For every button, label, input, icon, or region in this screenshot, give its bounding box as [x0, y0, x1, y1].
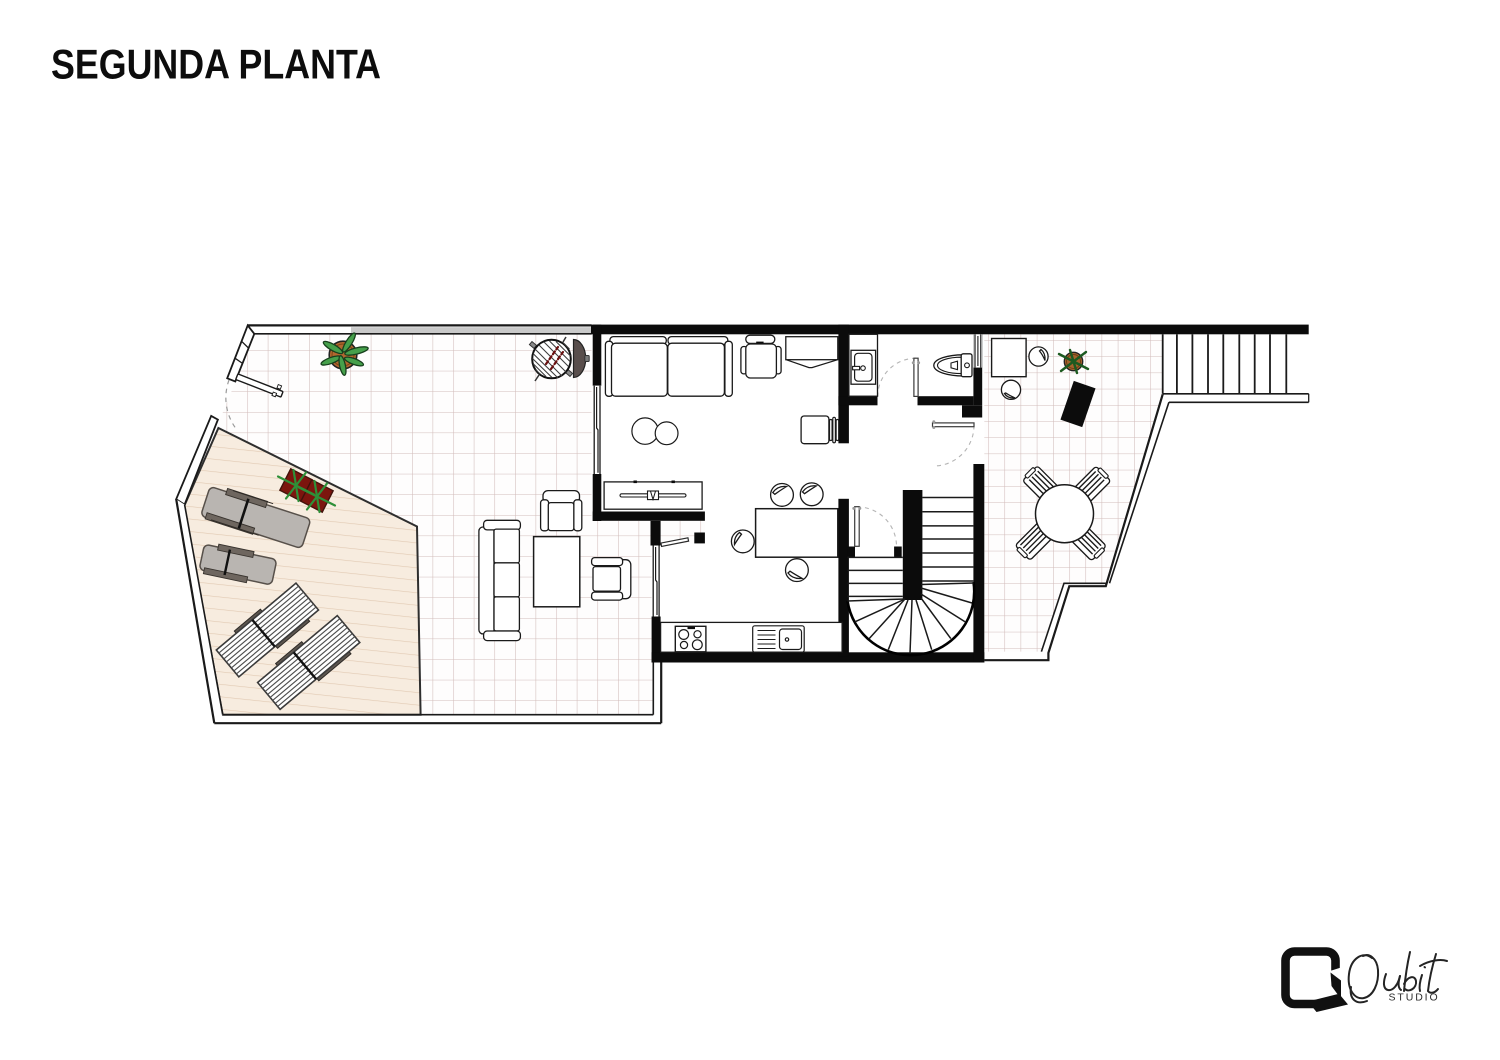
svg-text:STUDIO: STUDIO [1389, 992, 1440, 1004]
svg-text:SEGUNDA PLANTA: SEGUNDA PLANTA [51, 41, 381, 88]
